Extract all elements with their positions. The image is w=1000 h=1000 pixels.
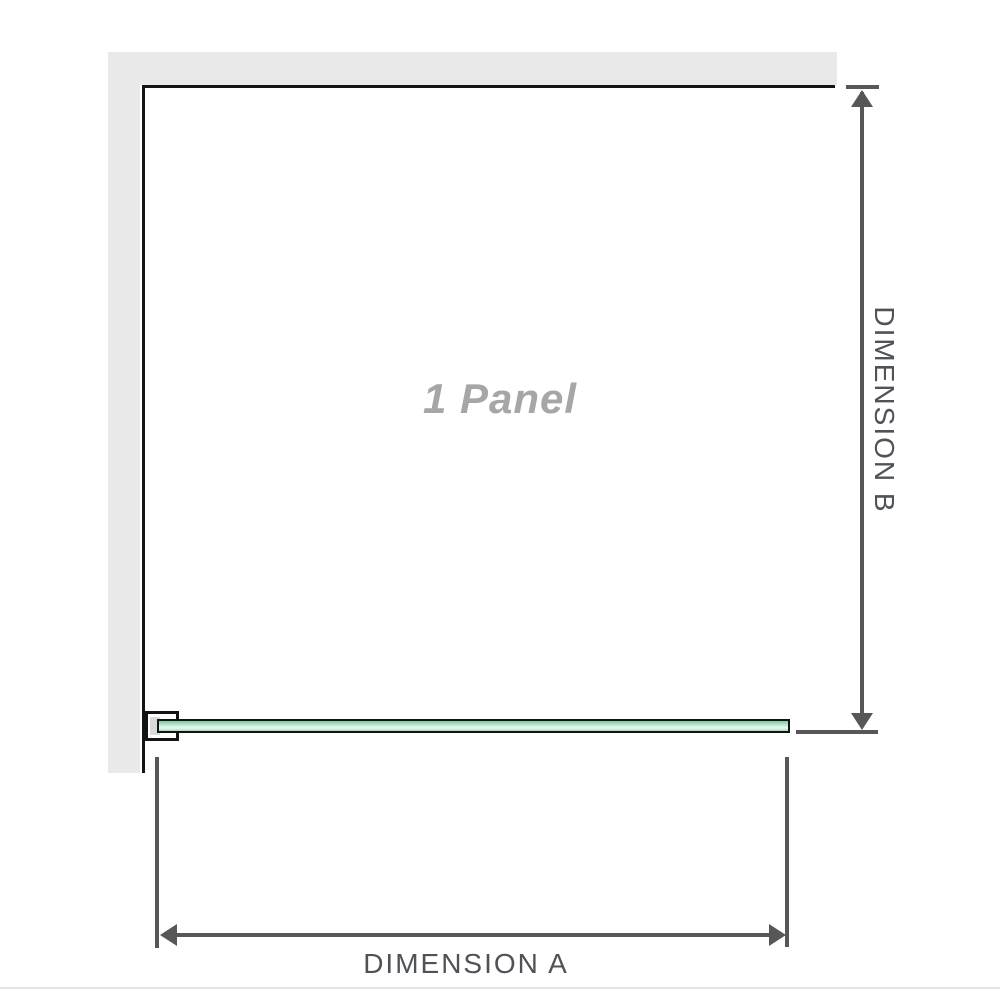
- arrowhead-left-icon: [160, 924, 177, 946]
- wall-left: [108, 52, 140, 773]
- wall-top: [108, 52, 837, 85]
- dimension-b-line: [860, 92, 864, 724]
- wall-inner-edge-horizontal: [142, 85, 835, 88]
- dimension-b-label: DIMENSION B: [868, 306, 900, 513]
- dimension-b-top-tick: [846, 85, 879, 89]
- dimension-a-extension-left: [155, 757, 159, 948]
- arrowhead-down-icon: [851, 713, 873, 730]
- panel-count-label: 1 Panel: [423, 375, 577, 423]
- dimension-a-line: [163, 933, 783, 937]
- dimension-a-extension-right: [785, 757, 789, 947]
- dimension-a-label: DIMENSION A: [363, 948, 569, 980]
- dimension-b-bottom-tick: [796, 730, 878, 734]
- glass-panel: [157, 719, 790, 733]
- arrowhead-up-icon: [851, 90, 873, 107]
- bottom-divider: [0, 987, 1000, 989]
- arrowhead-right-icon: [769, 924, 786, 946]
- wall-inner-edge-vertical: [142, 85, 145, 773]
- panel-diagram: 1 Panel DIMENSION B DIMENSION A: [0, 0, 1000, 1000]
